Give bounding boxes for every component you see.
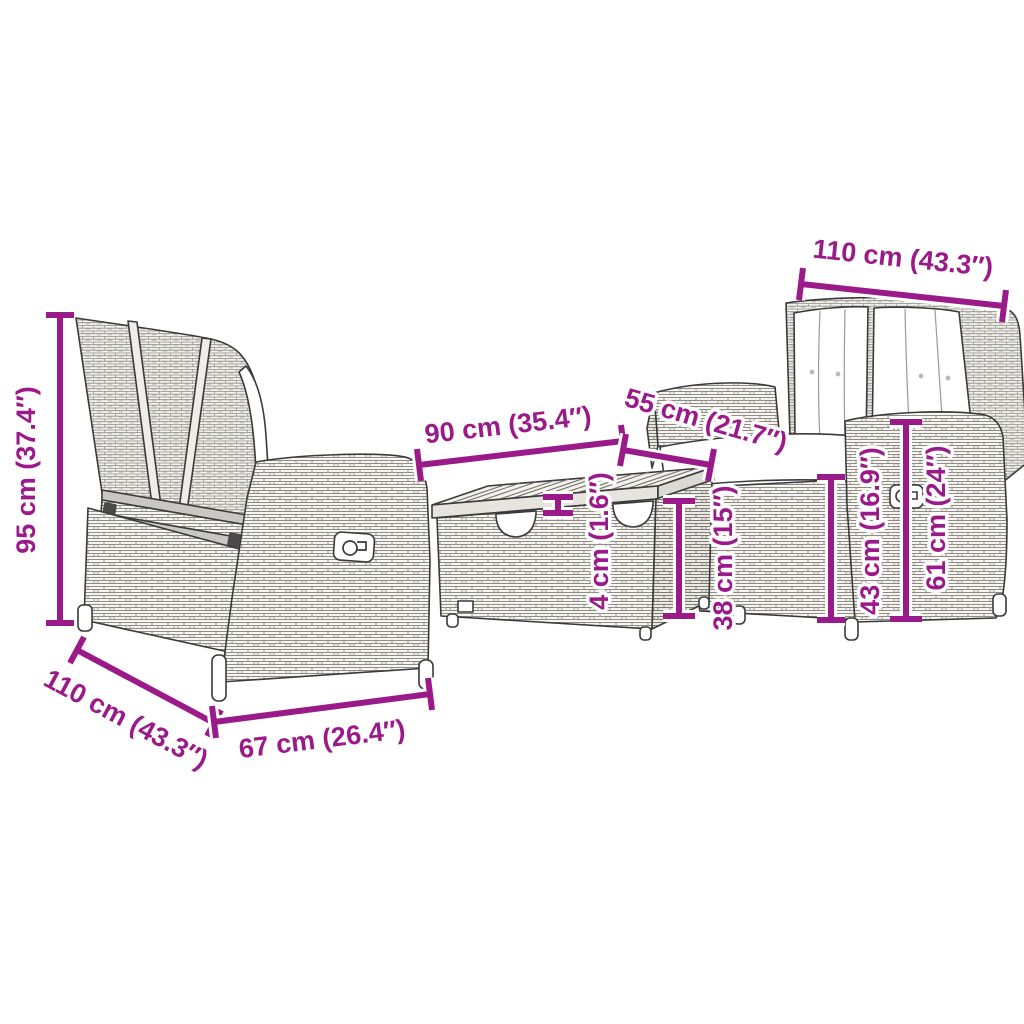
- left-bench-illustration: [76, 318, 433, 701]
- tuft-button: [946, 376, 951, 381]
- tuft-button: [810, 370, 815, 375]
- dimension-diagram-canvas: 95 cm (37.4″) 110 cm (43.3″) 67 cm (26.4…: [0, 0, 1024, 1024]
- table-foot: [640, 627, 651, 640]
- tuft-button: [919, 374, 924, 379]
- dim-line-95: [46, 315, 74, 623]
- dim-bench-seat-width: 67 cm (26.4″): [212, 678, 432, 764]
- left-bench-leg: [212, 655, 226, 701]
- dim-label-38: 38 cm (15″): [708, 485, 738, 630]
- dim-label-61: 61 cm (24″): [921, 445, 951, 590]
- dim-label-4: 4 cm (1.6″): [584, 472, 614, 610]
- dim-bench-depth: 110 cm (43.3″): [39, 637, 221, 775]
- table-foot: [447, 614, 458, 627]
- right-bench-leg: [845, 618, 858, 640]
- dim-bench-height: 95 cm (37.4″): [11, 315, 74, 623]
- dim-label-43: 43 cm (16.9″): [855, 447, 885, 615]
- left-bench-side-panel: [221, 454, 430, 682]
- dim-table-length: 90 cm (35.4″): [417, 401, 625, 481]
- dim-label-95: 95 cm (37.4″): [11, 386, 41, 554]
- tuft-button: [836, 372, 841, 377]
- lounge-set-diagram: 95 cm (37.4″) 110 cm (43.3″) 67 cm (26.4…: [0, 0, 1024, 1024]
- left-bench-leg: [78, 605, 92, 631]
- dim-label-110-right: 110 cm (43.3″): [811, 234, 994, 283]
- table-latch: [458, 601, 473, 612]
- recline-strap-icon: [333, 532, 375, 563]
- right-bench-leg: [993, 594, 1006, 616]
